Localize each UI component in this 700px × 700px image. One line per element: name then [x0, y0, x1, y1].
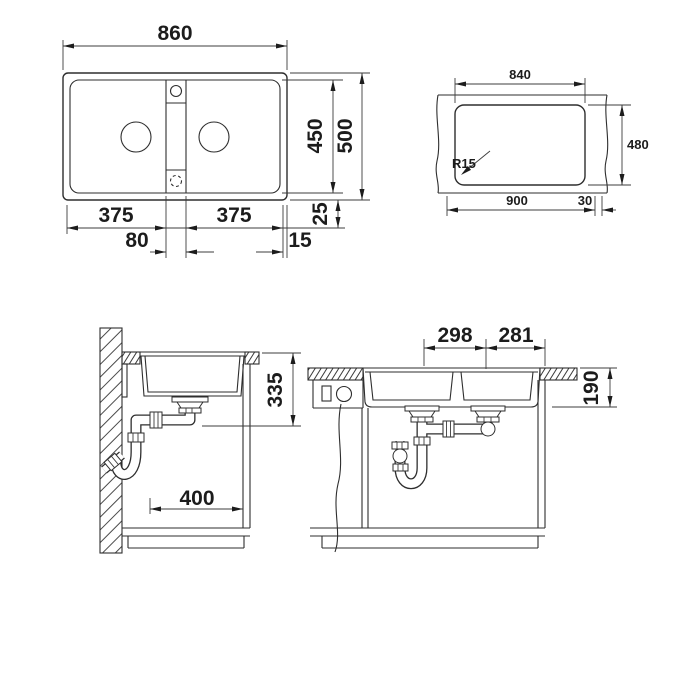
optional-tap-hole: [171, 176, 182, 187]
dim-overall-length: 500: [334, 118, 357, 153]
pipe-coupling: [150, 412, 162, 428]
strainer-flange-left: [405, 406, 439, 411]
pipe-coupling: [393, 464, 408, 471]
dim-rear-clearance: 400: [179, 487, 214, 510]
technical-drawing-canvas: 860 450 500 25 375 375 80 15: [0, 0, 700, 700]
cutout-outline: [455, 105, 585, 185]
break-line-right: [605, 95, 608, 193]
dim-right-bowl-span: 281: [498, 324, 533, 347]
side-section-view: 335 400: [100, 328, 301, 553]
right-bowl: [461, 372, 533, 400]
worktop-right: [245, 352, 259, 364]
pipe-coupling: [443, 421, 454, 437]
strainer-nut: [477, 417, 499, 422]
sink-outline: [63, 73, 287, 200]
left-bowl: [370, 372, 453, 400]
break-line-left: [436, 95, 439, 193]
technical-drawing-page: 860 450 500 25 375 375 80 15: [0, 0, 700, 700]
sink-section: [363, 368, 540, 407]
tap-hole: [171, 86, 182, 97]
worktop-slab: [436, 95, 608, 193]
wall-batten: [122, 364, 127, 397]
strainer-nut: [179, 408, 201, 413]
dim-min-cabinet-width: 900: [506, 193, 528, 208]
pipe-coupling: [128, 433, 144, 442]
pipe-coupling: [392, 442, 408, 449]
break-line: [335, 404, 341, 552]
sink-outer-rim: [63, 73, 287, 200]
front-section-view: 298 281 190: [308, 324, 617, 552]
strainer-nut: [411, 417, 433, 422]
dim-corner-radius: R15: [452, 156, 476, 171]
dim-drain-height: 335: [264, 372, 287, 407]
worktop-left: [308, 368, 363, 380]
trap-elbow: [393, 449, 407, 463]
pipe-coupling: [414, 437, 430, 445]
top-view: 860 450 500 25 375 375 80 15: [63, 22, 370, 258]
dim-overall-width: 860: [157, 22, 192, 45]
wall-section: [100, 328, 122, 553]
cutout-view: 840 480 R15 900 30: [436, 67, 649, 216]
dim-bowl-depth: 190: [580, 370, 603, 405]
socket-symbol: [337, 387, 352, 402]
dim-bowl-length: 450: [304, 118, 327, 153]
strainer-flange: [172, 397, 208, 402]
sink-section: [140, 352, 245, 396]
pipe-elbow: [481, 422, 495, 436]
cutout-dimensions: [447, 78, 631, 216]
adjacent-cabinet-panel: [313, 380, 363, 408]
right-drain-hole: [199, 122, 229, 152]
dim-rim-margin: 25: [309, 202, 332, 226]
dim-edge-margin: 15: [288, 229, 312, 252]
left-drain-hole: [121, 122, 151, 152]
dim-left-bowl-span: 298: [437, 324, 472, 347]
dim-cutout-width: 840: [509, 67, 531, 82]
drain-plumbing: [392, 406, 505, 484]
worktop-left: [122, 352, 140, 364]
dim-center-web-width: 80: [125, 229, 148, 252]
worktop-right: [540, 368, 577, 380]
switch-symbol: [322, 386, 331, 401]
dim-left-bowl-width: 375: [98, 204, 133, 227]
dim-edge-distance: 30: [578, 193, 592, 208]
strainer-flange-right: [471, 406, 505, 411]
dim-cutout-height: 480: [627, 137, 649, 152]
dim-right-bowl-width: 375: [216, 204, 251, 227]
